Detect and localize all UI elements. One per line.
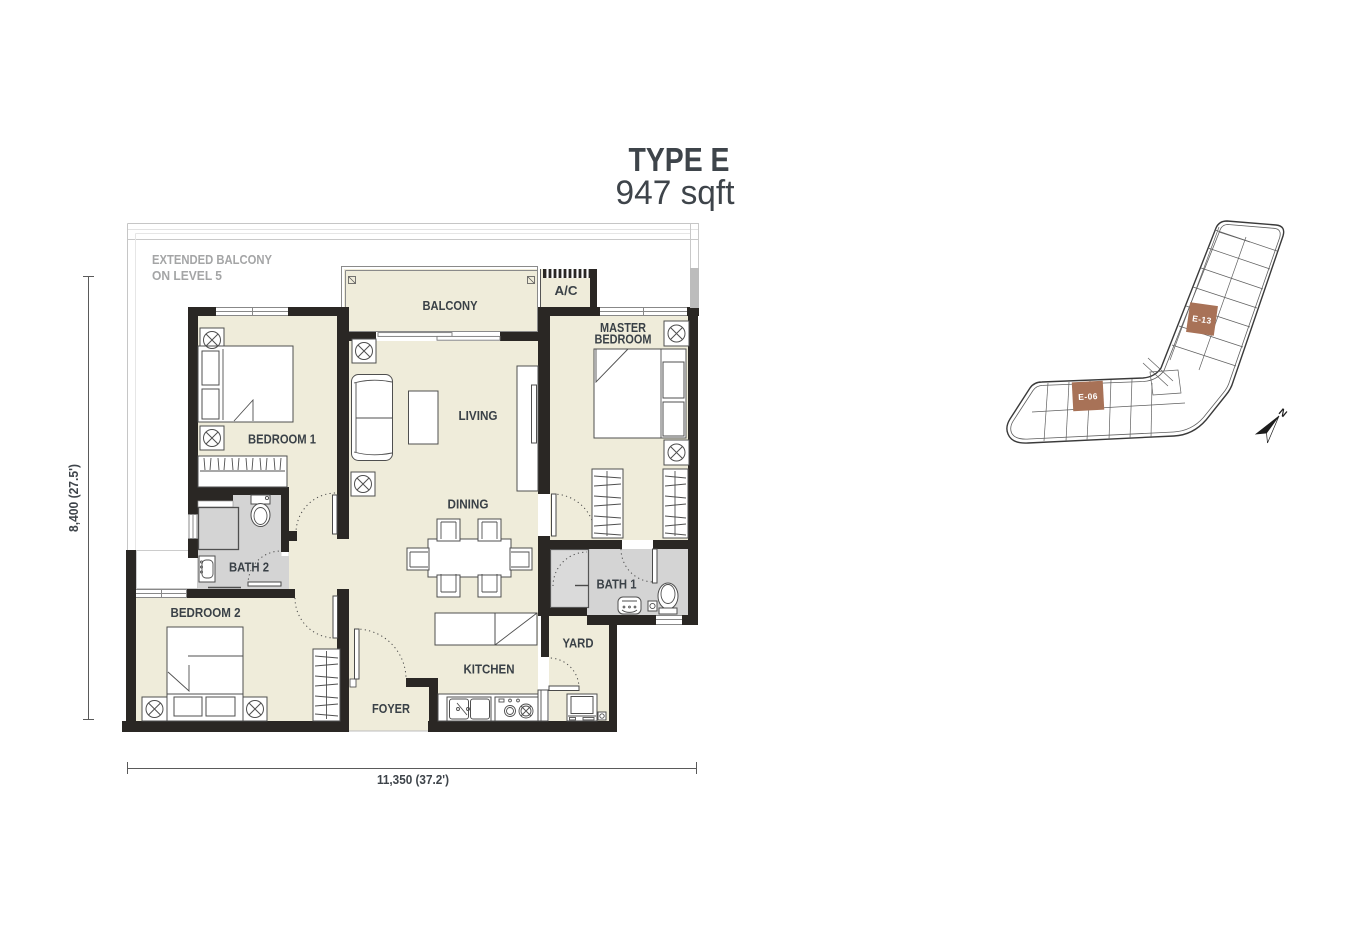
- svg-text:8,400 (27.5'): 8,400 (27.5'): [66, 464, 81, 532]
- svg-text:BATH 2: BATH 2: [229, 560, 269, 575]
- svg-text:BEDROOM 2: BEDROOM 2: [171, 605, 241, 620]
- svg-text:YARD: YARD: [563, 636, 594, 651]
- svg-text:LIVING: LIVING: [459, 408, 498, 423]
- svg-text:DINING: DINING: [448, 497, 489, 512]
- svg-text:TYPE E: TYPE E: [629, 141, 730, 178]
- svg-text:E-06: E-06: [1078, 391, 1098, 402]
- svg-text:BEDROOM: BEDROOM: [595, 332, 652, 347]
- svg-text:A/C: A/C: [555, 283, 579, 298]
- svg-text:KITCHEN: KITCHEN: [464, 662, 515, 677]
- svg-text:BATH 1: BATH 1: [597, 577, 637, 592]
- svg-text:947 sqft: 947 sqft: [616, 174, 736, 212]
- svg-text:BALCONY: BALCONY: [423, 298, 478, 313]
- svg-text:FOYER: FOYER: [372, 701, 411, 716]
- svg-text:EXTENDED BALCONY: EXTENDED BALCONY: [152, 253, 273, 267]
- svg-text:BEDROOM 1: BEDROOM 1: [248, 432, 316, 447]
- svg-text:11,350 (37.2'): 11,350 (37.2'): [377, 772, 449, 787]
- svg-text:ON LEVEL 5: ON LEVEL 5: [152, 269, 222, 283]
